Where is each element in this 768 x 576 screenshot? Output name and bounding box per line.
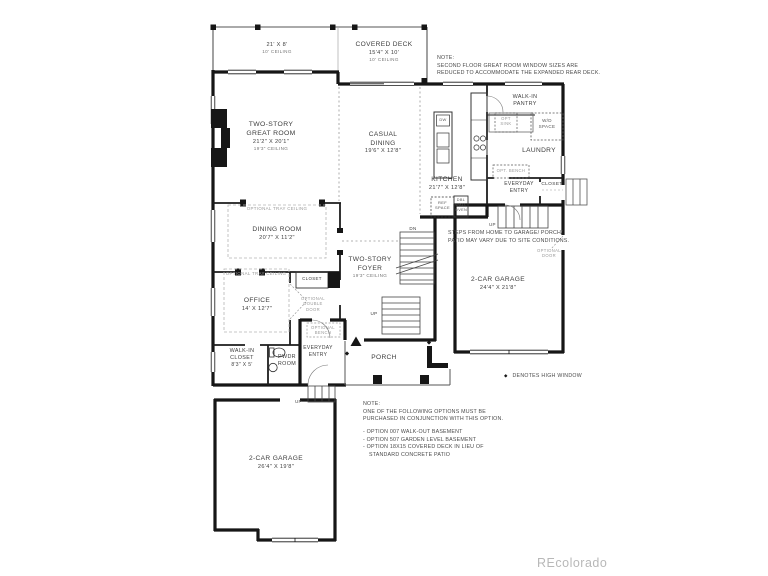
label-ref-space: REF SPACE (435, 200, 450, 210)
label-up-porch: UP (295, 388, 302, 410)
legend-high-window: ◆ DENOTES HIGH WINDOW (504, 362, 582, 384)
room-label-everyday-entry-left: EVERYDAY ENTRY (303, 345, 333, 358)
room-label-pwdr: PWDR ROOM (278, 354, 296, 368)
room-label-laundry: LAUNDRY (522, 147, 556, 156)
room-label-walk-in-closet: WALK-IN CLOSET 8'3" X 5' (230, 348, 255, 369)
room-label-garage-left: 2-CAR GARAGE 26'4" X 19'8" (249, 455, 303, 471)
room-label-covered-deck: COVERED DECK 15'4" X 10' 10' CEILING (356, 41, 413, 63)
note-bottom: NOTE: ONE OF THE FOLLOWING OPTIONS MUST … (363, 401, 503, 460)
front-door-marker (351, 337, 362, 347)
porch-column (373, 375, 382, 384)
room-label-office: OFFICE 14' X 12'7" (242, 297, 272, 313)
floorplan-page: 21' X 8' 10' CEILING COVERED DECK 15'4" … (0, 0, 768, 576)
room-label-deck: 21' X 8' 10' CEILING (262, 42, 292, 55)
label-opt-sink: OPT SINK (500, 116, 511, 127)
room-label-foyer: TWO-STORY FOYER 19'3" CEILING (348, 256, 391, 279)
watermark-recolorado: REcolorado (537, 556, 607, 570)
label-wd-space: W/D SPACE (539, 118, 556, 130)
label-wall-oven: DBL WALL OVEN (455, 198, 467, 213)
room-label-closet-right: CLOSET (541, 182, 562, 188)
room-label-garage-right: 2-CAR GARAGE 24'4" X 21'8" (471, 276, 525, 292)
label-optional-door: OPTIONAL DOOR (537, 248, 561, 259)
room-label-porch: PORCH (371, 354, 397, 363)
note-top: NOTE: SECOND FLOOR GREAT ROOM WINDOW SIZ… (437, 55, 600, 78)
room-label-everyday-entry-right: EVERYDAY ENTRY (504, 181, 534, 194)
label-optional-double-door: OPTIONAL DOUBLE DOOR (301, 296, 325, 312)
note-steps: STEPS FROM HOME TO GARAGE/ PORCH/ PATIO … (448, 230, 569, 245)
label-tray-ceiling-dining: OPTIONAL TRAY CEILING (247, 206, 308, 212)
label-up-foyer: UP (371, 311, 378, 317)
label-tray-ceiling-office: OPTIONAL TRAY CEILING (226, 271, 287, 277)
high-window-diamond-icon: ◆ (504, 373, 508, 378)
room-label-great-room: TWO-STORY GREAT ROOM 21'2" X 20'1" 19'3"… (246, 121, 295, 152)
room-label-closet-foyer: CLOSET (302, 276, 322, 282)
label-dn-foyer: DN (409, 226, 416, 232)
floorplan-linework (0, 0, 768, 576)
stairs-foyer-icon (382, 232, 438, 334)
side-stoop-icon (566, 179, 587, 205)
room-label-casual-dining: CASUAL DINING 19'6" X 12'8" (365, 131, 401, 155)
room-label-pantry: WALK-IN PANTRY (513, 94, 538, 108)
porch-icon (345, 337, 450, 386)
label-dw: DW (439, 117, 446, 122)
porch-column (420, 375, 429, 384)
room-label-dining-room: DINING ROOM 20'7" X 11'2" (252, 226, 301, 242)
room-label-kitchen: KITCHEN 21'7" X 12'8" (429, 176, 465, 192)
label-optional-bench: OPTIONAL BENCH (311, 325, 335, 336)
stairs-garage-icon (498, 205, 548, 228)
label-opt-bench: OPT. BENCH (497, 168, 526, 173)
